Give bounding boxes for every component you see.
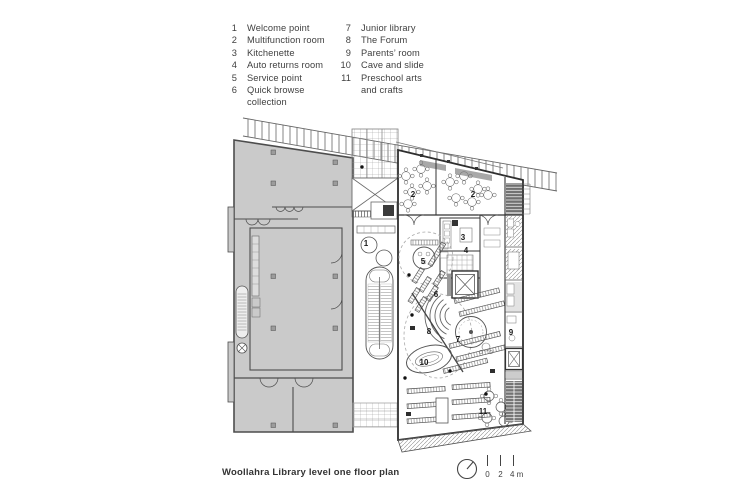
floor-plan-drawing: 1 2 2 3 4 5 6 7 8 9 10 11 [0, 0, 750, 500]
room-label-4: 4 [464, 246, 469, 255]
room-label-1: 1 [364, 239, 369, 248]
kiosk [371, 202, 397, 219]
room-label-10: 10 [420, 358, 429, 367]
reading-table [436, 398, 448, 423]
room-label-3: 3 [461, 233, 466, 242]
scale-bar [488, 455, 514, 466]
scale-label-2: 2 [495, 470, 506, 479]
room-label-2b: 2 [471, 190, 476, 199]
room-label-11: 11 [479, 407, 488, 416]
elevator-secondary [506, 349, 523, 370]
escalators [366, 267, 393, 359]
room-label-2a: 2 [411, 190, 416, 199]
scale-label-4m: 4 m [510, 470, 523, 479]
room-label-6: 6 [434, 290, 439, 299]
gray-building [228, 140, 353, 432]
page: 1Welcome point 2Multifunction room 3Kitc… [0, 0, 750, 500]
room-label-7: 7 [456, 335, 461, 344]
walkway-bridge [353, 403, 400, 427]
caption-title: Woollahra Library level one floor plan [222, 467, 399, 478]
room-label-8: 8 [427, 327, 432, 336]
welcome-desk [357, 226, 395, 266]
room-label-9: 9 [509, 328, 514, 337]
scale-label-0: 0 [482, 470, 493, 479]
north-arrow-icon [458, 460, 477, 479]
room-label-5: 5 [421, 257, 426, 266]
skylight-grid [352, 129, 398, 178]
service-strip [505, 177, 530, 424]
